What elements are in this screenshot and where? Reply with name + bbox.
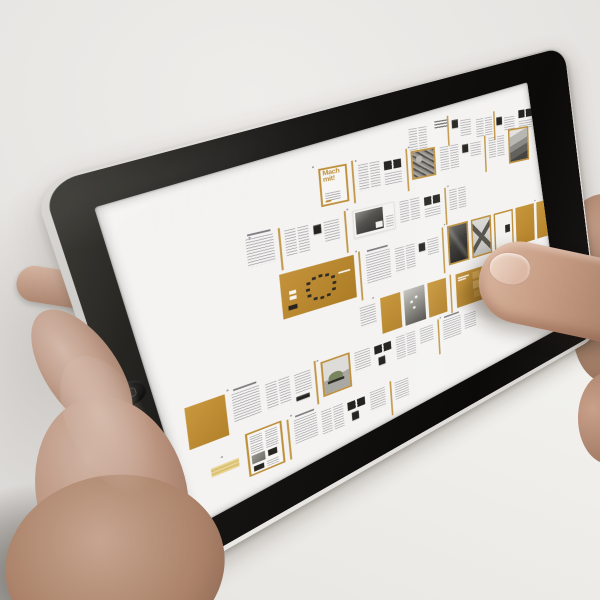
flatplan-image-thumb[interactable] [419, 242, 426, 252]
flatplan-page-marker [355, 250, 357, 252]
flatplan-text-spread[interactable] [488, 135, 504, 159]
flatplan-text-spread[interactable] [399, 197, 420, 223]
flatplan-text-spread-heading[interactable] [365, 248, 391, 283]
flatplan-divider [351, 161, 356, 204]
ot-chair-detail [312, 277, 316, 281]
flatplan-divider [442, 227, 446, 273]
flatplan-image-thumb[interactable] [452, 119, 459, 128]
flatplan-divider [444, 188, 447, 225]
cf-dark-detail [268, 447, 278, 457]
flatplan-photo-page-car[interactable] [320, 352, 352, 397]
flatplan-workshop-spread[interactable] [279, 255, 357, 320]
flatplan-text-spread[interactable] [321, 403, 345, 434]
flatplan-text-spread[interactable] [396, 331, 417, 360]
cover-title: Mach mit! [322, 167, 346, 184]
flatplan-divider [389, 381, 393, 416]
flatplan-orange-page[interactable] [427, 278, 447, 318]
flatplan-page-marker [226, 389, 228, 392]
ot-chair-detail [325, 273, 329, 277]
cover-mark [326, 200, 332, 203]
flatplan-page-marker [355, 160, 357, 162]
flatplan-text-spread[interactable] [440, 144, 460, 171]
ot-chair-detail [327, 293, 331, 297]
spread-photo [355, 207, 384, 235]
flatplan-page-marker [444, 224, 446, 226]
flatplan-text-spread-heading[interactable] [293, 412, 318, 444]
flatplan-note-strip[interactable] [211, 458, 240, 478]
flatplan-text-spread[interactable] [324, 219, 341, 242]
thumb-fingernail [486, 249, 532, 288]
flatplan-text-spread[interactable] [265, 376, 292, 410]
flatplan-photo-page-darkp[interactable] [447, 221, 470, 266]
ot-chair-detail [307, 294, 311, 298]
flatplan-page-marker [312, 166, 314, 168]
flatplan-photo-page-busy[interactable] [410, 147, 436, 180]
flatplan-image-thumbs[interactable] [347, 396, 365, 411]
flatplan-image-thumbs[interactable] [424, 194, 440, 206]
flatplan-orange-page[interactable] [184, 394, 229, 450]
flatplan-text-spread[interactable] [425, 205, 441, 219]
flatplan-text-lines[interactable] [434, 119, 447, 129]
flatplan-image-thumb[interactable] [352, 410, 360, 421]
photo-caption-box [376, 220, 383, 228]
ot-white-detail [338, 269, 350, 274]
flatplan-text-spread-heading[interactable] [231, 385, 261, 423]
flatplan-page-marker [221, 456, 223, 459]
flatplan-page-marker [439, 317, 441, 319]
flatplan-divider [344, 211, 349, 253]
flatplan-gradient-page[interactable] [403, 284, 426, 326]
flatplan-divider [405, 149, 409, 192]
flatplan-text-spread[interactable] [420, 324, 434, 344]
flatplan-page-marker [372, 297, 374, 299]
flatplan-page-marker [447, 185, 449, 187]
flatplan-text-spread[interactable] [449, 186, 467, 211]
flatplan-text-spread[interactable] [385, 170, 403, 186]
flatplan-image-thumb[interactable] [313, 224, 321, 235]
flatplan-text-spread[interactable] [395, 377, 410, 399]
flatplan-image-thumb[interactable] [496, 116, 502, 125]
flatplan-divider [278, 228, 284, 271]
flatplan-text-spread[interactable] [370, 387, 386, 412]
ot-white-detail [289, 295, 296, 301]
flatplan-divider [358, 251, 363, 300]
ot-dark-detail [288, 304, 297, 311]
cf-lines-detail [267, 456, 279, 466]
flatplan-page-marker [534, 200, 535, 202]
flatplan-text-spread-heading[interactable] [443, 315, 462, 341]
flatplan-divider [437, 319, 440, 354]
photo-scene: Mach mit! [0, 0, 600, 600]
flatplan-text-spread[interactable] [284, 225, 310, 256]
flatplan-photo-page-arch[interactable] [508, 126, 529, 164]
flatplan-page-marker [316, 360, 318, 362]
flatplan-image-thumb-wide[interactable] [296, 392, 310, 401]
flatplan-text-spread[interactable] [395, 243, 416, 273]
ot-chair-detail [331, 275, 335, 279]
flatplan-page-marker [290, 415, 292, 417]
flatplan-cover-page[interactable]: Mach mit! [318, 164, 349, 208]
cf-dark-detail [254, 462, 265, 471]
flatplan-page-marker [346, 208, 348, 210]
flatplan-orange-page[interactable] [515, 203, 534, 245]
flatplan-divider [484, 135, 487, 172]
flatplan-divider [286, 419, 292, 460]
flatplan-text-spread[interactable] [360, 303, 377, 328]
ot-chair-detail [332, 287, 336, 291]
ot-chair-detail [306, 288, 310, 292]
flatplan-text-spread[interactable] [358, 161, 381, 192]
flatplan-image-thumbs[interactable] [384, 158, 402, 170]
flatplan-orange-page[interactable] [380, 292, 402, 334]
flatplan-image-thumbs[interactable] [374, 341, 391, 355]
flatplan-image-thumb[interactable] [462, 144, 468, 153]
flatplan-text-spread[interactable] [470, 141, 481, 157]
flatplan-photo-page-xpat[interactable] [471, 215, 493, 259]
ot-chair-detail [314, 297, 318, 301]
flatplan-divider [314, 361, 320, 405]
flatplan-image-thumbs[interactable] [518, 108, 532, 118]
flatplan-divider [447, 116, 450, 148]
flatplan-layout-page[interactable] [245, 420, 286, 477]
spread-caption [386, 214, 394, 227]
ot-chair-detail [306, 282, 310, 286]
flatplan-image-thumb[interactable] [378, 355, 385, 365]
flatplan-text-spread[interactable] [294, 369, 312, 393]
ot-chair-detail [320, 296, 324, 300]
flatplan-text-spread[interactable] [427, 237, 439, 256]
ot-chair-detail [332, 281, 336, 285]
ot-chair-detail [318, 274, 322, 278]
flatplan-text-spread[interactable] [354, 347, 371, 372]
flatplan-photo-spread[interactable] [352, 201, 396, 239]
flatplan-text-spread[interactable] [460, 119, 471, 137]
